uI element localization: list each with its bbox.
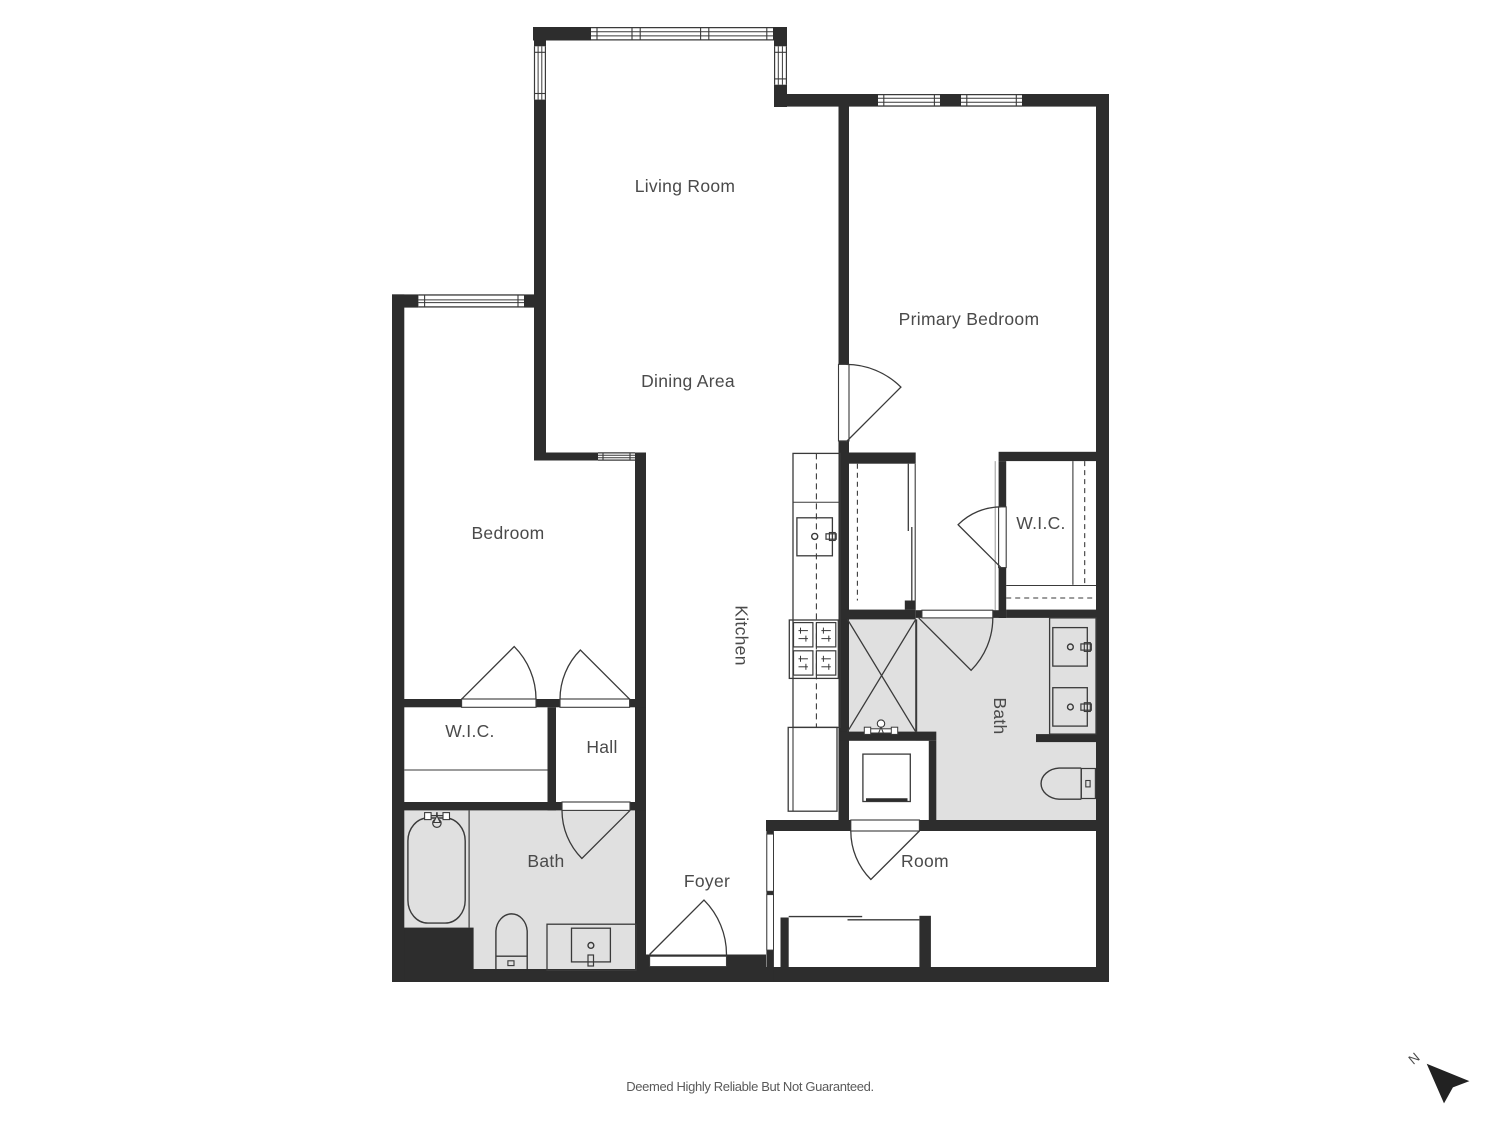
svg-text:Living Room: Living Room: [635, 176, 736, 196]
svg-text:Bedroom: Bedroom: [471, 523, 544, 543]
svg-text:Kitchen: Kitchen: [732, 605, 752, 665]
svg-text:Foyer: Foyer: [684, 871, 730, 891]
svg-text:Room: Room: [901, 851, 949, 871]
svg-text:Bath: Bath: [527, 851, 564, 871]
svg-text:Deemed Highly Reliable But Not: Deemed Highly Reliable But Not Guarantee…: [626, 1079, 874, 1094]
svg-text:W.I.C.: W.I.C.: [1016, 513, 1065, 533]
svg-text:Primary Bedroom: Primary Bedroom: [899, 309, 1040, 329]
svg-text:Hall: Hall: [586, 737, 617, 757]
svg-text:Bath: Bath: [990, 697, 1010, 734]
svg-text:Dining Area: Dining Area: [641, 371, 735, 391]
svg-text:W.I.C.: W.I.C.: [445, 721, 494, 741]
